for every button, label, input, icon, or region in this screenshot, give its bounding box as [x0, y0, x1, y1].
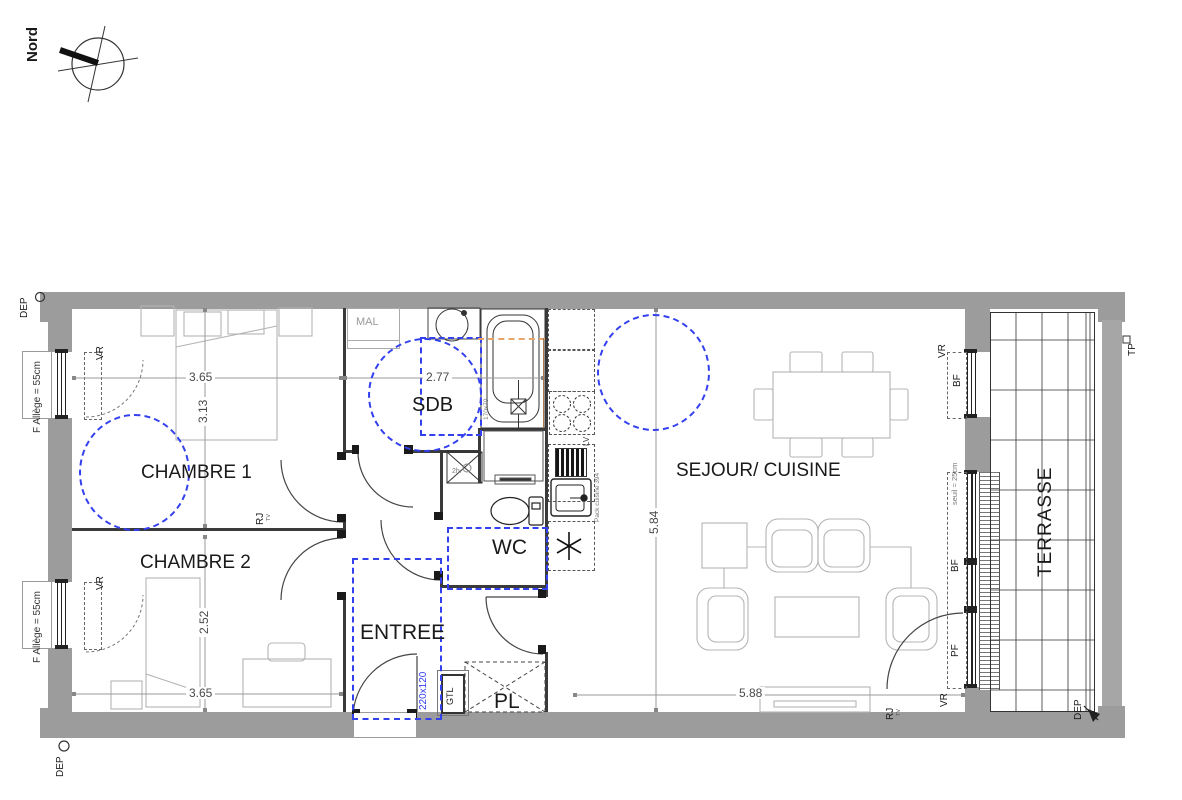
- vr-label-ch1: VR: [96, 346, 106, 360]
- dep-label-topleft: DEP: [20, 297, 30, 318]
- lintel-line: [478, 338, 545, 340]
- dim-sdb-width: 2.77: [423, 371, 452, 383]
- dep-label-bottomright: DEP: [1074, 699, 1084, 720]
- room-label-chambre2: CHAMBRE 2: [140, 553, 251, 572]
- kitchen-counter: [548, 349, 595, 392]
- door-arc-chambre1: [281, 460, 343, 522]
- seuil-note: seuil = 25cm: [951, 463, 959, 505]
- vr-label-sej-top: VR: [938, 344, 948, 358]
- mal-label: MAL: [356, 317, 379, 328]
- vr-label-ch2: VR: [96, 576, 106, 590]
- oven-icon: [555, 448, 587, 477]
- room-label-pl: PL: [494, 691, 520, 712]
- room-label-sejour: SEJOUR/ CUISINE: [676, 461, 841, 480]
- room-label-terrasse: TERRASSE: [1036, 447, 1055, 577]
- pack-cuisine-note: Pack cuisine 394: [595, 473, 602, 522]
- drain-symbol: [1084, 336, 1130, 722]
- window-note-allege-2: F Allège = 55cm: [33, 591, 43, 663]
- window-note-allege-1: F Allège = 55cm: [33, 361, 43, 433]
- fridge-box: [548, 521, 595, 571]
- wc-cabinet: [484, 431, 543, 484]
- door-arc-sdb: [358, 452, 413, 507]
- cooktop-box: [549, 391, 595, 435]
- dining-set: [754, 352, 908, 457]
- room-label-sdb: SDB: [412, 395, 453, 415]
- clearance-circle-sejour: [597, 314, 710, 431]
- bathtub-size-label: 170x70: [484, 399, 491, 420]
- floor-plan: Nord: [0, 0, 1182, 800]
- tp-label: TP: [1128, 343, 1138, 356]
- room-label-chambre1: CHAMBRE 1: [141, 463, 252, 482]
- dim-sejour-height: 5.84: [648, 508, 660, 537]
- dimension-markers: [72, 308, 965, 712]
- room-label-entree: ENTREE: [360, 622, 445, 643]
- lv-label: LV: [583, 437, 591, 446]
- dim-ch2-height: 2.52: [198, 608, 210, 637]
- toilet-icon: [491, 497, 543, 525]
- bf-label-1: BF: [953, 374, 963, 387]
- dim-ch2-width: 3.65: [186, 687, 215, 699]
- duct-size-label: 220x120: [419, 672, 429, 710]
- tp-symbol: [1123, 336, 1130, 343]
- bathtub-icon: [481, 309, 545, 431]
- pf-label: PF: [951, 644, 961, 657]
- dim-ch1-height: 3.13: [197, 397, 209, 426]
- room-label-wc: WC: [492, 537, 527, 558]
- bed-chambre2: [111, 578, 331, 709]
- sofa-set: [697, 519, 937, 712]
- kitchen-counter: [548, 309, 595, 351]
- gtl-label: GTL: [446, 687, 455, 705]
- clearance-rect-sdb: [420, 337, 482, 436]
- door-arc-corridor: [486, 597, 543, 654]
- door-arc-chambre2: [281, 538, 343, 600]
- bed-chambre1: [141, 306, 312, 440]
- dim-ch1-width: 3.65: [186, 371, 215, 383]
- bf-label-2: BF: [951, 559, 961, 572]
- dim-sejour-width: 5.88: [736, 687, 765, 699]
- dep-label-bottomleft: DEP: [56, 756, 66, 777]
- washer-note: 2h.: [452, 468, 462, 475]
- lintel-line-v: [543, 338, 544, 428]
- vr-label-sej-bottom: VR: [940, 693, 950, 707]
